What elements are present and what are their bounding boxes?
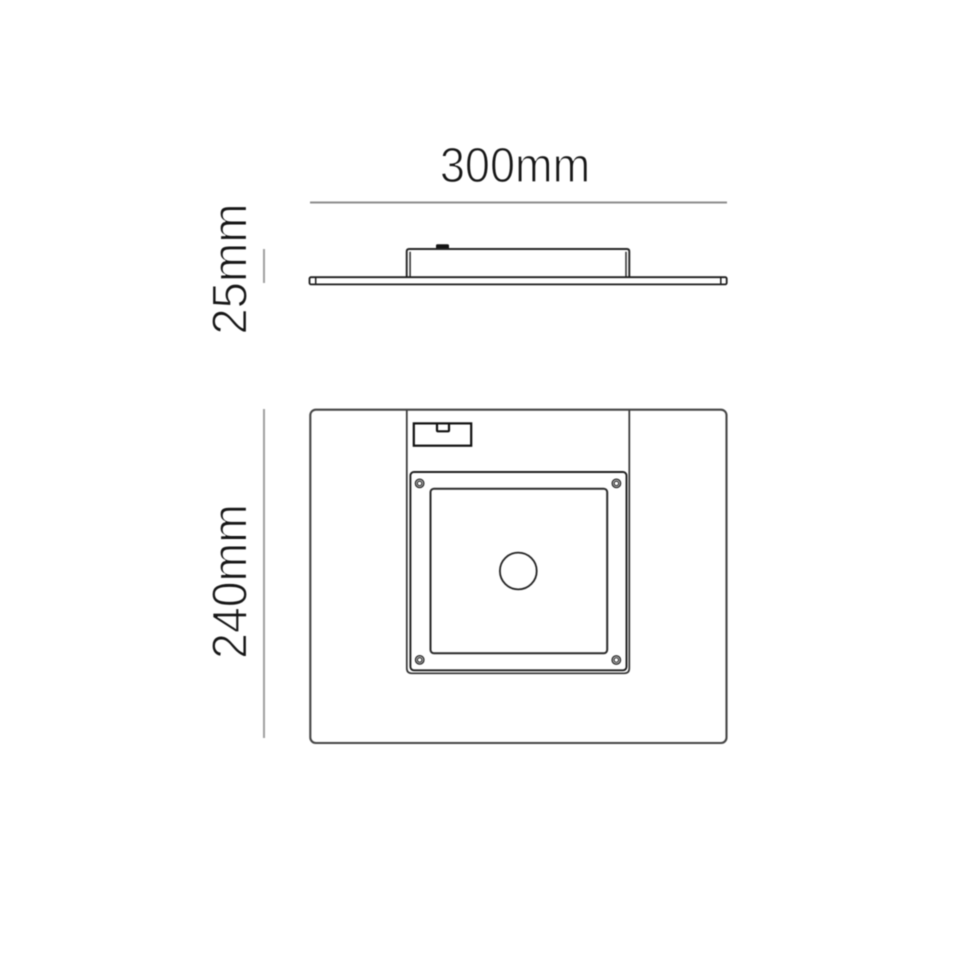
svg-text:300mm: 300mm [440,137,590,192]
svg-text:240mm: 240mm [203,504,257,659]
svg-text:25mm: 25mm [203,203,258,334]
